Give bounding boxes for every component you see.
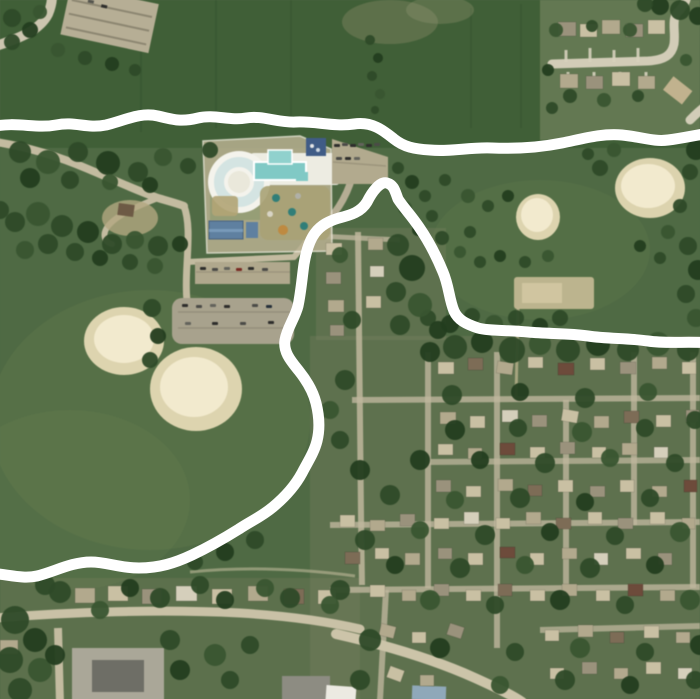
tree-canopy — [102, 174, 118, 190]
tree-canopy — [20, 168, 40, 188]
house-roof — [468, 358, 483, 370]
tree-canopy — [541, 523, 559, 541]
tree-canopy — [170, 660, 190, 680]
aerial-imagery — [0, 0, 700, 699]
house-roof — [464, 512, 479, 524]
tree-canopy — [623, 23, 637, 37]
house-roof — [610, 632, 624, 643]
tree-canopy — [475, 525, 495, 545]
tree-canopy — [371, 106, 379, 114]
parked-car — [240, 322, 246, 325]
tree-canopy — [105, 57, 119, 71]
field-crop-streak — [290, 0, 292, 126]
house-roof — [622, 443, 637, 455]
house-roof — [370, 585, 385, 597]
tree-canopy — [61, 171, 79, 189]
tree-canopy — [516, 556, 534, 574]
house-roof — [620, 362, 636, 374]
tree-canopy — [68, 142, 88, 162]
tree-canopy — [570, 638, 590, 658]
tree-canopy — [332, 247, 348, 263]
tree-canopy — [150, 588, 170, 608]
tree-canopy — [147, 258, 163, 274]
tree-canopy — [3, 9, 21, 27]
tree-canopy — [350, 460, 370, 480]
tree-canopy — [677, 285, 695, 303]
tree-canopy — [26, 202, 50, 226]
tree-canopy — [1, 606, 29, 634]
parked-car — [185, 322, 191, 325]
tree-canopy — [375, 89, 385, 99]
tree-canopy — [572, 422, 592, 442]
house-roof — [654, 447, 668, 458]
umbrella — [295, 193, 301, 199]
tree-canopy — [443, 335, 467, 359]
tree-canopy — [575, 388, 595, 408]
house-roof — [526, 512, 541, 524]
tree-canopy — [129, 64, 141, 76]
south-parking-strip — [195, 262, 290, 284]
tree-canopy — [142, 177, 158, 193]
tree-canopy — [464, 226, 476, 238]
street-grid — [330, 522, 700, 525]
house-roof — [562, 548, 577, 559]
house-roof — [402, 590, 416, 601]
parked-car — [342, 143, 348, 146]
tree-canopy — [408, 293, 432, 317]
tree-canopy — [78, 51, 92, 65]
parked-car — [200, 267, 206, 270]
tree-canopy — [586, 20, 598, 32]
house-roof — [560, 74, 578, 88]
tree-canopy — [202, 142, 218, 158]
tree-canopy — [654, 252, 666, 264]
tree-canopy — [682, 164, 698, 180]
house-roof — [620, 480, 634, 492]
tree-canopy — [509, 419, 527, 437]
tree-canopy — [502, 190, 514, 202]
tree-canopy — [373, 53, 383, 63]
tree-canopy — [580, 558, 600, 578]
tree-canopy — [387, 234, 409, 256]
tree-canopy — [350, 670, 370, 690]
tree-canopy — [679, 237, 697, 255]
house-roof — [594, 416, 609, 428]
tree-canopy — [426, 210, 438, 222]
tree-canopy — [616, 596, 634, 614]
house-roof — [468, 553, 483, 565]
tree-canopy — [546, 102, 558, 114]
lap-pool-notch — [296, 172, 308, 181]
umbrella — [300, 222, 308, 230]
house-roof — [586, 76, 603, 89]
house-roof — [560, 442, 575, 454]
house-roof — [561, 409, 579, 424]
tree-canopy — [365, 35, 375, 45]
street-grid — [428, 460, 700, 462]
house-roof — [500, 443, 515, 455]
lap-pool-wing — [268, 150, 292, 164]
tree-canopy — [121, 579, 139, 597]
tree-canopy — [410, 450, 430, 470]
umbrella — [288, 208, 296, 216]
tree-canopy — [142, 352, 158, 368]
house-roof — [328, 300, 344, 312]
tree-canopy — [519, 256, 531, 268]
tree-canopy — [461, 189, 475, 203]
tree-canopy — [386, 282, 406, 302]
house-roof — [652, 357, 667, 369]
house-roof — [638, 76, 655, 89]
house-roof — [582, 662, 597, 674]
tree-canopy — [191, 576, 209, 594]
ballfield-infield — [522, 283, 562, 303]
tree-canopy — [355, 530, 375, 550]
tree-canopy — [556, 338, 580, 362]
tree-canopy — [639, 383, 657, 401]
tree-canopy — [246, 531, 264, 549]
tree-canopy — [542, 250, 554, 262]
house-roof — [496, 361, 514, 375]
house-roof — [532, 415, 547, 427]
tree-canopy — [419, 190, 431, 202]
house-roof — [660, 590, 675, 601]
tree-canopy — [666, 454, 684, 472]
house-roof — [496, 518, 510, 529]
tree-canopy — [601, 449, 619, 467]
house-roof — [646, 662, 661, 674]
tree-canopy — [670, 522, 690, 542]
tree-canopy — [91, 601, 109, 619]
house-roof — [656, 415, 671, 427]
house-roof — [370, 266, 384, 277]
street-grid — [330, 587, 700, 590]
parked-car — [224, 305, 230, 308]
parked-car — [374, 143, 380, 146]
house-roof — [500, 547, 515, 558]
tree-canopy — [549, 23, 563, 37]
tree-canopy — [439, 174, 451, 186]
house-roof — [438, 548, 452, 559]
umbrella — [278, 225, 288, 235]
parked-car — [334, 144, 340, 147]
tree-canopy — [420, 590, 440, 610]
house-roof — [648, 20, 665, 34]
tree-canopy — [343, 311, 361, 329]
sand-bunker-east-1 — [621, 164, 675, 208]
slide-tower-building — [306, 138, 326, 156]
satellite-map-view[interactable] — [0, 0, 700, 699]
slide-dot — [310, 144, 314, 148]
tree-canopy — [486, 596, 504, 614]
tree-canopy — [143, 299, 161, 317]
tree-canopy — [621, 676, 639, 694]
bathhouse-ridge — [209, 229, 243, 232]
parked-car — [196, 305, 202, 308]
house-roof — [434, 518, 449, 529]
tree-canopy — [148, 236, 168, 256]
tree-canopy — [511, 383, 529, 401]
tree-canopy — [446, 491, 464, 509]
house-roof — [528, 485, 542, 496]
parked-car — [345, 157, 351, 160]
tree-canopy — [380, 485, 400, 505]
tree-canopy — [592, 160, 608, 176]
house-roof — [644, 626, 659, 638]
house-roof — [545, 630, 559, 641]
tree-canopy — [216, 591, 234, 609]
house-roof — [340, 515, 355, 527]
house-roof — [326, 272, 341, 284]
tree-canopy — [386, 556, 404, 574]
tree-canopy — [535, 453, 555, 473]
tree-canopy — [66, 243, 84, 261]
tree-canopy — [606, 527, 624, 545]
parked-car — [262, 268, 268, 271]
commercial-building — [92, 660, 144, 692]
tree-canopy — [367, 71, 377, 81]
tree-canopy — [154, 148, 172, 166]
tree-canopy — [597, 93, 611, 107]
house-roof — [438, 444, 453, 455]
tree-canopy — [221, 671, 239, 689]
parked-car — [336, 157, 342, 160]
house-roof — [412, 632, 426, 643]
picnic-shelter — [117, 203, 135, 217]
parked-car — [252, 304, 258, 307]
tree-canopy — [506, 643, 524, 661]
house-roof — [590, 486, 605, 497]
house-roof — [368, 238, 383, 250]
house-roof — [676, 632, 690, 643]
tree-canopy — [160, 630, 180, 650]
tree-canopy — [9, 141, 31, 163]
umbrella — [267, 211, 273, 217]
commercial-building — [282, 676, 330, 699]
parked-car — [212, 322, 218, 325]
tree-canopy — [576, 493, 594, 511]
parked-car — [224, 267, 230, 270]
tree-canopy — [96, 151, 120, 175]
tree-canopy — [670, 0, 690, 20]
parked-car — [182, 304, 188, 307]
house-roof — [590, 358, 605, 370]
house-roof — [498, 584, 512, 596]
tree-canopy — [632, 90, 644, 102]
tree-canopy — [494, 250, 506, 262]
house-roof — [684, 480, 697, 492]
sand-bunker-west-2 — [160, 357, 228, 417]
tree-canopy — [482, 200, 494, 212]
tree-canopy — [5, 212, 25, 232]
tree-canopy — [661, 225, 675, 239]
house-roof — [375, 548, 389, 559]
tree-canopy — [390, 315, 410, 335]
tree-canopy — [552, 310, 568, 326]
tree-canopy — [321, 596, 339, 614]
house-roof — [366, 296, 381, 308]
tree-canopy — [673, 199, 687, 213]
tree-canopy — [641, 489, 659, 507]
house-roof — [436, 480, 451, 492]
tree-canopy — [636, 419, 654, 437]
house-roof — [498, 479, 513, 491]
house-roof — [530, 590, 545, 601]
slide-dot — [316, 148, 320, 152]
tree-canopy — [92, 250, 108, 266]
tree-canopy — [399, 255, 425, 281]
parked-car — [236, 268, 242, 271]
playground-patch — [212, 196, 238, 216]
main-parking-lot — [172, 298, 294, 344]
tree-canopy — [23, 628, 47, 652]
field-crop-streak — [470, 8, 472, 128]
parked-car — [210, 304, 216, 307]
tree-canopy — [51, 215, 73, 237]
parked-car — [358, 143, 364, 146]
house-roof — [624, 411, 639, 423]
tree-canopy — [510, 488, 530, 508]
house-roof — [420, 675, 434, 686]
tree-canopy — [77, 221, 99, 243]
tree-canopy — [150, 328, 166, 344]
tree-canopy — [16, 241, 34, 259]
tree-canopy — [405, 175, 419, 189]
tree-canopy — [331, 431, 349, 449]
tree-canopy — [241, 636, 259, 654]
tree-canopy — [122, 254, 138, 270]
tree-canopy — [45, 645, 65, 665]
house-roof — [612, 72, 630, 86]
field-crop-streak — [520, 4, 522, 128]
tree-canopy — [36, 150, 60, 174]
tree-canopy — [607, 143, 621, 157]
house-roof — [628, 584, 643, 596]
tree-canopy — [442, 385, 462, 405]
tree-canopy — [51, 43, 65, 57]
house-roof — [556, 518, 571, 529]
house-roof — [596, 590, 610, 601]
park-road-south — [184, 206, 188, 300]
tree-canopy — [392, 162, 404, 174]
field-crop-streak — [215, 0, 217, 128]
house-roof — [470, 416, 485, 428]
tree-canopy — [636, 643, 654, 661]
house-roof — [345, 552, 360, 564]
blue-roof-building — [412, 685, 446, 699]
bathhouse-building — [246, 222, 258, 238]
parked-car — [212, 268, 218, 271]
house-roof — [578, 625, 593, 637]
tree-canopy — [445, 420, 465, 440]
tree-canopy — [435, 231, 449, 245]
tree-canopy — [582, 148, 594, 160]
house-roof — [405, 553, 420, 565]
white-roof-building — [325, 685, 356, 699]
tree-canopy — [491, 676, 509, 694]
tree-canopy — [555, 670, 575, 690]
lazy-river-island — [228, 171, 250, 193]
house-roof — [558, 363, 574, 375]
parked-car — [266, 305, 272, 308]
tree-canopy — [126, 231, 144, 249]
tree-canopy — [411, 521, 429, 539]
tree-canopy — [204, 644, 226, 666]
house-roof — [650, 512, 665, 524]
tree-canopy — [634, 240, 646, 252]
tree-canopy — [22, 22, 38, 38]
tree-canopy — [420, 342, 440, 362]
house-roof — [618, 518, 633, 529]
house-roof — [602, 20, 620, 34]
tree-canopy — [429, 321, 447, 339]
tree-canopy — [450, 558, 470, 578]
tree-canopy — [646, 556, 664, 574]
house-roof — [682, 362, 696, 374]
parked-car — [354, 157, 360, 160]
parked-car — [268, 321, 274, 324]
parked-car — [350, 144, 356, 147]
tree-canopy — [508, 310, 524, 326]
umbrella — [272, 194, 280, 202]
tree-canopy — [680, 54, 692, 66]
tree-canopy — [33, 5, 47, 19]
street-grid — [540, 626, 700, 630]
house-roof — [466, 486, 481, 497]
house-roof — [466, 590, 481, 601]
house-roof — [626, 548, 641, 559]
tree-canopy — [256, 579, 274, 597]
tree-canopy — [359, 629, 381, 651]
tree-canopy — [4, 34, 20, 50]
parked-car — [248, 267, 254, 270]
tree-canopy — [335, 370, 355, 390]
tree-canopy — [499, 337, 525, 363]
tree-canopy — [454, 246, 466, 258]
tree-canopy — [563, 89, 577, 103]
tree-canopy — [180, 158, 196, 174]
tree-canopy — [102, 234, 122, 254]
tree-canopy — [38, 234, 58, 254]
tree-canopy — [430, 638, 450, 658]
house-roof — [438, 362, 454, 374]
parked-car — [366, 144, 372, 147]
tree-canopy — [474, 256, 486, 268]
tree-canopy — [172, 236, 188, 252]
tree-canopy — [680, 590, 700, 610]
house-roof — [330, 325, 344, 336]
house-roof — [528, 357, 543, 368]
house-roof — [588, 512, 602, 524]
tree-canopy — [471, 451, 489, 469]
sand-bunker-east-2 — [521, 198, 553, 232]
tree-canopy — [280, 588, 300, 608]
house-roof — [558, 480, 573, 492]
tree-canopy — [542, 64, 554, 76]
tree-canopy — [550, 590, 570, 610]
house-roof — [400, 514, 415, 526]
house-roof — [370, 520, 385, 531]
house-roof — [75, 588, 95, 603]
